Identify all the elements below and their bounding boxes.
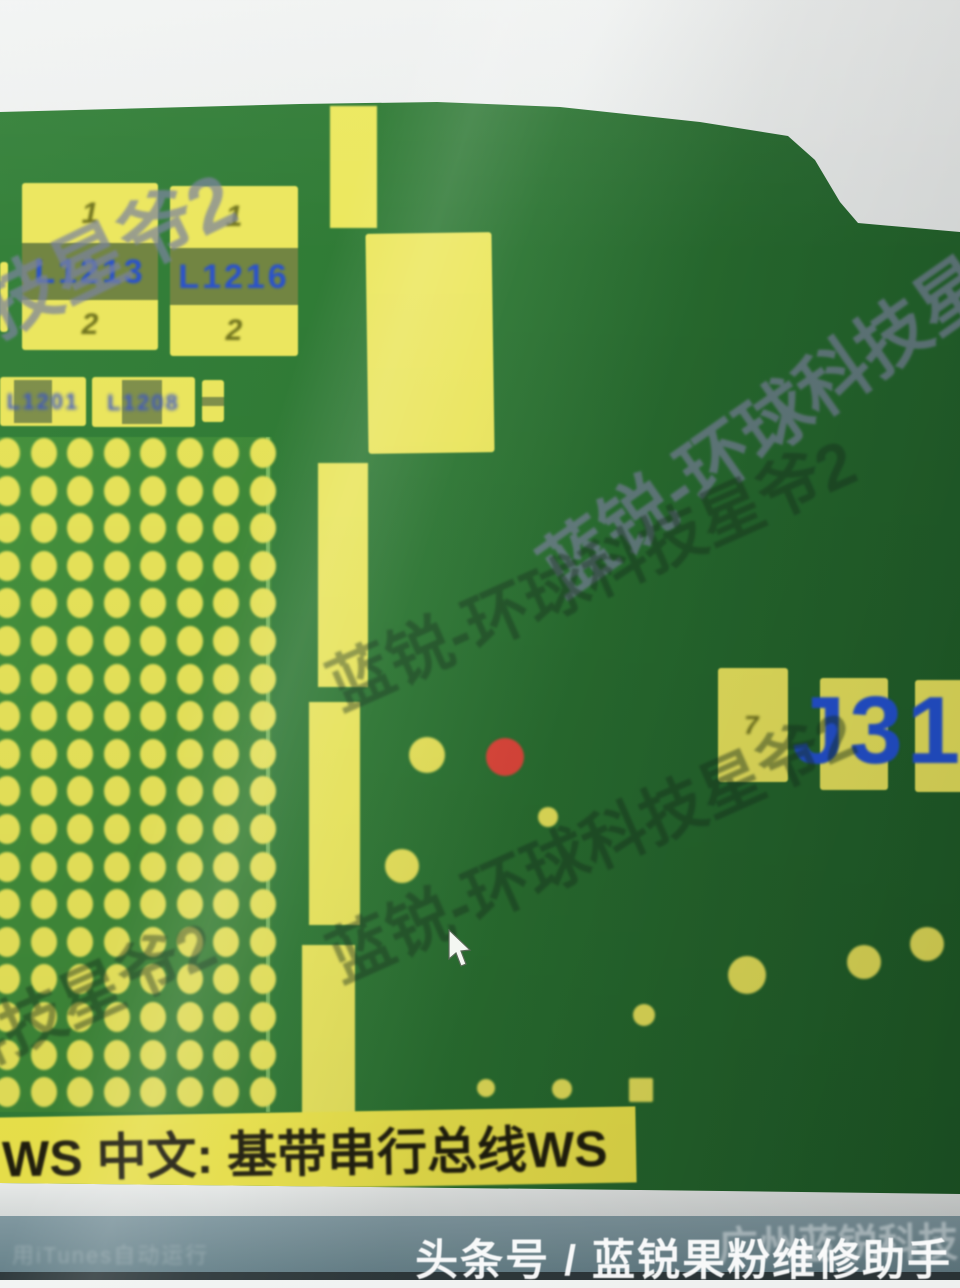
connector-designator-J310: J310	[792, 676, 960, 786]
bga-pad-dot[interactable]	[213, 701, 239, 731]
bga-pad-dot[interactable]	[67, 1077, 93, 1107]
pad-bar-segment[interactable]	[330, 106, 377, 228]
bga-pad-dot[interactable]	[31, 739, 57, 769]
small-component-2[interactable]: L1208	[92, 377, 195, 427]
bga-pad-dot[interactable]	[31, 551, 57, 581]
bga-pad-dot[interactable]	[213, 476, 239, 506]
test-point[interactable]	[633, 1004, 655, 1026]
bga-pad-dot[interactable]	[250, 927, 276, 957]
test-point[interactable]	[629, 1078, 653, 1102]
bga-pad-dot[interactable]	[177, 476, 203, 506]
bga-pad-dot[interactable]	[67, 664, 93, 694]
test-point[interactable]	[728, 956, 766, 994]
bga-pad-dot[interactable]	[250, 551, 276, 581]
bga-pad-dot[interactable]	[250, 814, 276, 844]
bga-pad-dot[interactable]	[104, 438, 130, 468]
bga-pad-dot[interactable]	[177, 551, 203, 581]
bga-pad-dot[interactable]	[177, 664, 203, 694]
bga-pad-dot[interactable]	[250, 588, 276, 618]
bga-pad-dot[interactable]	[67, 889, 93, 919]
bga-pad-dot[interactable]	[250, 852, 276, 882]
pin-number: 7	[744, 710, 758, 741]
bga-pad-dot[interactable]	[104, 664, 130, 694]
bga-pad-dot[interactable]	[67, 814, 93, 844]
bga-pad-dot[interactable]	[177, 776, 203, 806]
pcb-viewer-canvas[interactable]: 1 L1213 2 1 L1216 2 L1201 L1208 7	[0, 0, 960, 1280]
bga-pad-dot[interactable]	[177, 739, 203, 769]
bga-pad-dot[interactable]	[250, 438, 276, 468]
small-component-3[interactable]	[202, 380, 224, 422]
bga-pad-dot[interactable]	[213, 1040, 239, 1070]
bga-pad-dot[interactable]	[31, 1077, 57, 1107]
bga-pad-dot[interactable]	[140, 814, 166, 844]
bga-pad-dot[interactable]	[140, 889, 166, 919]
bga-pad-dot[interactable]	[213, 814, 239, 844]
bga-pad-dot[interactable]	[250, 964, 276, 994]
bga-pad-dot[interactable]	[31, 1040, 57, 1070]
bga-pad-dot[interactable]	[31, 1002, 57, 1032]
bga-pad-dot[interactable]	[31, 776, 57, 806]
highlighted-test-point[interactable]	[486, 738, 524, 776]
bga-pad-dot[interactable]	[31, 513, 57, 543]
test-point[interactable]	[552, 1079, 572, 1099]
bga-pad-dot[interactable]	[67, 739, 93, 769]
bga-pad-dot[interactable]	[140, 513, 166, 543]
bga-pad-dot[interactable]	[140, 626, 166, 656]
bga-pad-dot[interactable]	[31, 626, 57, 656]
bga-pad-dot[interactable]	[177, 814, 203, 844]
pin-number-top: 1	[170, 200, 298, 234]
bga-pad-dot[interactable]	[104, 776, 130, 806]
component-L1216[interactable]: 1 L1216 2	[170, 186, 298, 356]
bga-pad-dot[interactable]	[31, 664, 57, 694]
bga-pad-dot[interactable]	[250, 1077, 276, 1107]
component-label: L1208	[92, 390, 195, 416]
bga-pad-dot[interactable]	[140, 551, 166, 581]
bga-pad-dot[interactable]	[140, 664, 166, 694]
bga-pad-dot[interactable]	[140, 438, 166, 468]
bga-pad-dot[interactable]	[67, 551, 93, 581]
small-component-1[interactable]: L1201	[0, 377, 86, 426]
pad-bar-segment[interactable]	[309, 702, 360, 925]
bga-pad-dot[interactable]	[104, 701, 130, 731]
test-point[interactable]	[538, 807, 558, 827]
bga-pad-dot[interactable]	[104, 476, 130, 506]
bga-pad-dot[interactable]	[213, 513, 239, 543]
bga-pad-dot[interactable]	[177, 964, 203, 994]
test-point[interactable]	[409, 737, 445, 773]
bga-pad-dot[interactable]	[67, 1040, 93, 1070]
bga-pad-dot[interactable]	[67, 476, 93, 506]
bga-pad-dot[interactable]	[67, 852, 93, 882]
bga-pad-dot[interactable]	[104, 513, 130, 543]
pin-number-top: 1	[22, 197, 158, 231]
component-body	[202, 397, 224, 406]
bga-pad-dot[interactable]	[67, 701, 93, 731]
test-point[interactable]	[910, 927, 944, 961]
bga-pad-dot[interactable]	[31, 814, 57, 844]
bga-pad-dot[interactable]	[250, 626, 276, 656]
bga-pad-dot[interactable]	[250, 664, 276, 694]
bga-pad-dot[interactable]	[177, 438, 203, 468]
pad-bar-segment[interactable]	[318, 463, 368, 687]
footer-channel-watermark: 头条号 / 蓝锐果粉维修助手	[0, 1226, 952, 1288]
edge-pad-sliver[interactable]	[0, 262, 8, 332]
bga-pad-dot[interactable]	[213, 664, 239, 694]
bga-pad-dot[interactable]	[177, 1002, 203, 1032]
test-point[interactable]	[385, 849, 419, 883]
component-label: L1201	[0, 389, 86, 415]
bga-pad-dot[interactable]	[67, 513, 93, 543]
connector-pad-7[interactable]: 7	[718, 668, 788, 782]
bga-pad-dot[interactable]	[104, 551, 130, 581]
bga-pad-dot[interactable]	[250, 776, 276, 806]
bga-pad-dot[interactable]	[250, 1040, 276, 1070]
bga-pad-dot[interactable]	[250, 513, 276, 543]
bga-pad-dot[interactable]	[250, 476, 276, 506]
bga-pad-dot[interactable]	[31, 852, 57, 882]
bga-pad-dot[interactable]	[31, 701, 57, 731]
bga-pad-dot[interactable]	[177, 588, 203, 618]
test-point[interactable]	[477, 1079, 495, 1097]
bga-pad-dot[interactable]	[104, 1040, 130, 1070]
bga-pad-dot[interactable]	[104, 964, 130, 994]
bga-pad-dot[interactable]	[177, 513, 203, 543]
mouse-cursor	[447, 929, 473, 969]
net-name-text: WS 中文: 基带串行总线WS	[0, 1109, 608, 1192]
net-name-tooltip: WS 中文: 基带串行总线WS	[0, 1106, 637, 1193]
test-point[interactable]	[847, 945, 881, 979]
bga-pad-dot[interactable]	[250, 1002, 276, 1032]
bga-pad-dot[interactable]	[140, 927, 166, 957]
bga-pad-dot[interactable]	[104, 626, 130, 656]
component-label: L1213	[22, 253, 158, 292]
pin-number-bottom: 2	[170, 314, 298, 348]
bga-pad-dot[interactable]	[31, 476, 57, 506]
bga-pad-dot[interactable]	[213, 852, 239, 882]
bga-pad-dot[interactable]	[104, 852, 130, 882]
bga-pad-dot[interactable]	[31, 927, 57, 957]
bga-pad-dot[interactable]	[250, 701, 276, 731]
pin-number-bottom: 2	[22, 308, 158, 342]
bga-pad-dot[interactable]	[213, 438, 239, 468]
bga-pad-dot[interactable]	[177, 626, 203, 656]
bga-pad-dot[interactable]	[104, 927, 130, 957]
component-label: L1216	[170, 258, 298, 297]
large-pad-block[interactable]	[365, 232, 494, 454]
bga-pad-dot[interactable]	[104, 889, 130, 919]
bga-pad-dot[interactable]	[213, 927, 239, 957]
bga-pad-dot[interactable]	[250, 889, 276, 919]
bga-pad-dot[interactable]	[140, 1040, 166, 1070]
bga-pad-dot[interactable]	[104, 1077, 130, 1107]
bga-pad-dot[interactable]	[177, 852, 203, 882]
bga-pad-dot[interactable]	[104, 1002, 130, 1032]
bga-pad-dot[interactable]	[140, 476, 166, 506]
pad-bar-segment[interactable]	[302, 945, 355, 1117]
bga-pad-dot[interactable]	[67, 626, 93, 656]
bga-pad-dot[interactable]	[104, 814, 130, 844]
bga-pad-dot[interactable]	[177, 701, 203, 731]
bga-pad-dot[interactable]	[140, 852, 166, 882]
bga-pad-dot[interactable]	[213, 889, 239, 919]
bga-pad-dot[interactable]	[67, 438, 93, 468]
bga-pad-dot[interactable]	[104, 739, 130, 769]
bga-pad-dot[interactable]	[31, 889, 57, 919]
bga-pad-dot[interactable]	[31, 964, 57, 994]
component-L1213[interactable]: 1 L1213 2	[22, 183, 158, 350]
bga-pad-dot[interactable]	[213, 551, 239, 581]
bga-pad-dot[interactable]	[67, 1002, 93, 1032]
bga-pad-dot[interactable]	[177, 927, 203, 957]
bga-pad-dot[interactable]	[104, 588, 130, 618]
bga-pad-dot[interactable]	[177, 889, 203, 919]
bga-pad-dot[interactable]	[31, 588, 57, 618]
bga-pad-dot[interactable]	[67, 927, 93, 957]
bga-pad-dot[interactable]	[213, 1077, 239, 1107]
bga-pad-dot[interactable]	[177, 1040, 203, 1070]
bga-pad-dot[interactable]	[140, 1077, 166, 1107]
bga-pad-dot[interactable]	[140, 701, 166, 731]
bga-pad-dot[interactable]	[140, 739, 166, 769]
bga-pad-dot[interactable]	[213, 626, 239, 656]
bga-pad-dot[interactable]	[140, 1002, 166, 1032]
bga-pad-dot[interactable]	[31, 438, 57, 468]
bga-pad-dot[interactable]	[250, 739, 276, 769]
bga-pad-dot[interactable]	[213, 1002, 239, 1032]
bga-pad-dot[interactable]	[177, 1077, 203, 1107]
bga-pad-dot[interactable]	[213, 739, 239, 769]
